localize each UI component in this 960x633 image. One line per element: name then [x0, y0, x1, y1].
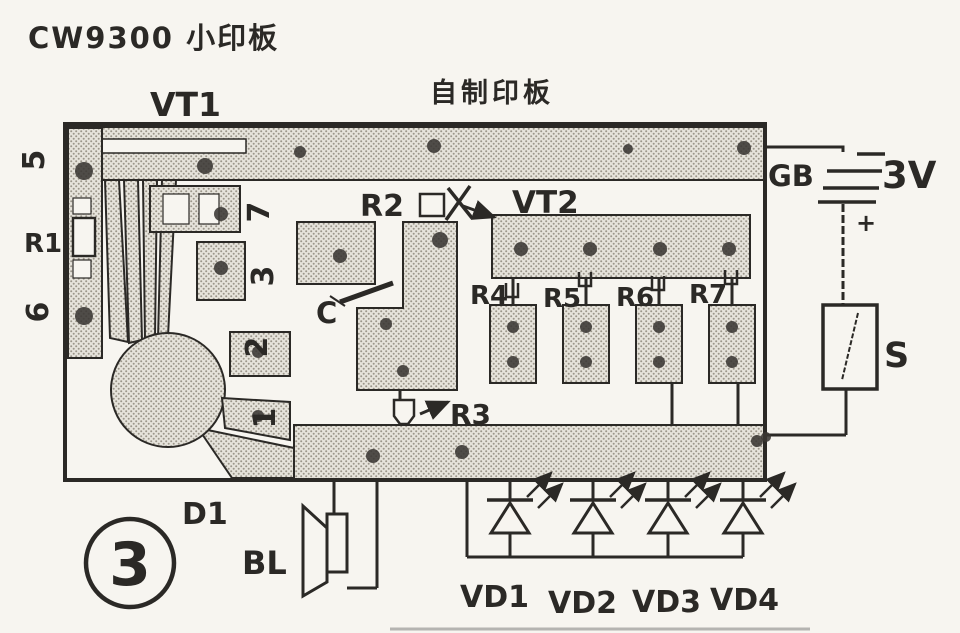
pcb-diagram: CW9300 小印板 自制印板 VT1 5 R1 6 7 3 2	[0, 0, 960, 633]
pin2-label: 2	[240, 337, 275, 358]
figure-title: CW9300 小印板	[28, 21, 279, 55]
vt2-label: VT2	[512, 185, 579, 221]
solder-dot	[75, 307, 93, 325]
solder-dot	[294, 146, 306, 158]
solder-dot	[507, 356, 519, 368]
bottom-copper-bus	[294, 425, 765, 479]
r1-resistor-outline	[73, 218, 95, 256]
solder-dot	[583, 242, 597, 256]
r3-label: R3	[450, 398, 491, 431]
solder-dot	[514, 242, 528, 256]
solder-dot	[214, 261, 228, 275]
voltage-label: 3V	[882, 154, 937, 197]
battery-plus: +	[856, 209, 876, 237]
board2-label: 自制印板	[430, 77, 554, 109]
solder-dot	[432, 232, 448, 248]
solder-dot	[726, 321, 738, 333]
switch-label: S	[884, 336, 909, 376]
solder-dot	[623, 144, 633, 154]
pin3-label: 3	[246, 266, 281, 287]
vt2-pad	[492, 215, 750, 278]
solder-dot	[333, 249, 347, 263]
c-label: C	[316, 296, 337, 330]
solder-dot	[580, 356, 592, 368]
r6-label: R6	[616, 283, 654, 313]
solder-dot	[653, 356, 665, 368]
vd2-label: VD2	[548, 586, 617, 621]
vd4-label: VD4	[710, 583, 779, 618]
bl-label: BL	[242, 544, 287, 582]
routing-slot	[163, 194, 189, 224]
pin7-label: 7	[242, 202, 277, 223]
routing-slot	[199, 194, 219, 224]
solder-dot	[427, 139, 441, 153]
routing-slot	[73, 260, 91, 278]
solder-dot	[722, 242, 736, 256]
solder-dot	[737, 141, 751, 155]
solder-dot	[455, 445, 469, 459]
r4-pad	[490, 305, 536, 383]
pin6-label: 6	[21, 302, 56, 323]
solder-dot	[580, 321, 592, 333]
solder-dot	[507, 321, 519, 333]
vd1-label: VD1	[460, 580, 529, 615]
routing-slot	[88, 139, 246, 153]
solder-dot	[214, 207, 228, 221]
chip-blob	[111, 333, 225, 447]
solder-dot	[397, 365, 409, 377]
r5-label: R5	[543, 284, 581, 314]
speaker-magnet	[327, 514, 347, 572]
solder-dot	[380, 318, 392, 330]
solder-dot	[726, 356, 738, 368]
junction-dot	[761, 432, 771, 442]
r3-symbol	[394, 400, 414, 424]
pin1-label: 1	[248, 408, 283, 429]
gb-label: GB	[768, 159, 814, 193]
solder-dot	[653, 242, 667, 256]
r2-label: R2	[360, 189, 404, 224]
routing-slot	[73, 198, 91, 214]
r5-pad	[563, 305, 609, 383]
r4-label: R4	[470, 281, 508, 311]
r7-label: R7	[689, 280, 727, 310]
vt1-label: VT1	[150, 85, 221, 124]
r6-pad	[636, 305, 682, 383]
r7-pad	[709, 305, 755, 383]
d1-label: D1	[182, 497, 228, 532]
solder-dot	[653, 321, 665, 333]
pin5-label: 5	[17, 150, 52, 171]
solder-dot	[75, 162, 93, 180]
solder-dot	[197, 158, 213, 174]
r1-label: R1	[24, 229, 62, 259]
switch-body	[823, 305, 877, 389]
figure-number: 3	[109, 530, 151, 600]
scanned-figure-page: CW9300 小印板 自制印板 VT1 5 R1 6 7 3 2	[0, 0, 960, 633]
vd3-label: VD3	[632, 585, 701, 620]
solder-dot	[366, 449, 380, 463]
